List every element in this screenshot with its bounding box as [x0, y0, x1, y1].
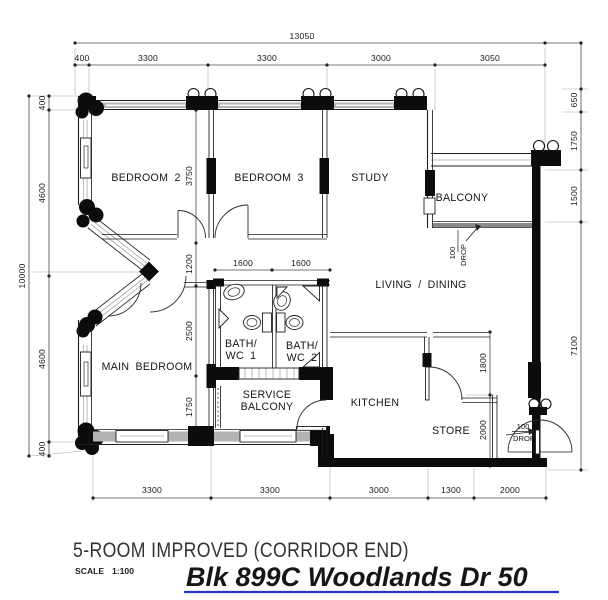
dim-bottom-1: 3300 — [260, 485, 280, 495]
entrance-drop-value: 100 — [517, 422, 530, 431]
dim-interior-0: 3750 — [184, 166, 194, 186]
dim-left-3: 400 — [37, 442, 47, 457]
room-label-bath1-line2: WC 1 — [226, 350, 257, 362]
dim-interior-3: 1750 — [184, 397, 194, 417]
bath1-fixtures — [219, 282, 272, 332]
room-label-service-line1: SERVICE — [243, 389, 291, 401]
dim-kitchen-1: 2000 — [478, 420, 488, 440]
floor-plan-page: 13050 400 3300 3300 3000 3050 10000 400 … — [0, 0, 608, 600]
dim-bottom-4: 2000 — [500, 485, 520, 495]
balcony-drop-word: DROP — [459, 244, 468, 266]
entrance-drop-word: DROP — [513, 434, 535, 443]
dim-bottom-3: 1300 — [441, 485, 461, 495]
room-label-kitchen: KITCHEN — [351, 397, 400, 409]
room-label-service-line2: BALCONY — [241, 401, 294, 413]
room-label-balcony: BALCONY — [436, 192, 489, 204]
dim-top-2: 3300 — [257, 53, 277, 63]
dim-kitchen-0: 1800 — [478, 353, 488, 373]
dim-top-0: 400 — [75, 53, 90, 63]
dim-right-0: 650 — [569, 93, 579, 108]
dim-left-0: 400 — [37, 96, 47, 111]
dim-top-3: 3000 — [371, 53, 391, 63]
dim-interior-1: 1200 — [184, 254, 194, 274]
dim-bath-1: 1600 — [291, 258, 311, 268]
dim-bottom-0: 3300 — [142, 485, 162, 495]
floor-plan-drawing: 13050 400 3300 3300 3000 3050 10000 400 … — [0, 0, 608, 600]
handwritten-annotation: Blk 899C Woodlands Dr 50 — [184, 562, 559, 592]
dim-right-2: 1500 — [569, 186, 579, 206]
dim-top-4: 3050 — [480, 53, 500, 63]
room-label-bedroom2: BEDROOM 2 — [111, 172, 180, 184]
room-label-study: STUDY — [351, 172, 388, 184]
room-label-store: STORE — [432, 425, 470, 437]
room-label-bath2-line2: WC 2 — [287, 352, 318, 364]
dim-right-3: 7100 — [569, 336, 579, 356]
room-label-bath2-line1: BATH/ — [286, 340, 318, 352]
dim-bottom-2: 3000 — [369, 485, 389, 495]
left-wall — [75, 96, 159, 455]
room-label-main-bedroom: MAIN BEDROOM — [102, 361, 193, 373]
bottom-wall — [77, 426, 330, 446]
dim-right-1: 1750 — [569, 131, 579, 151]
dim-top-1: 3300 — [138, 53, 158, 63]
dim-overall-width: 13050 — [290, 31, 315, 41]
scale-label: SCALE — [75, 566, 104, 576]
room-label-bedroom3: BEDROOM 3 — [234, 172, 303, 184]
scale-value: 1:100 — [112, 566, 134, 576]
dim-interior-2: 2500 — [184, 321, 194, 341]
dim-left-2: 4600 — [37, 349, 47, 369]
dim-left-1: 4600 — [37, 183, 47, 203]
dim-bath-0: 1600 — [233, 258, 253, 268]
dim-overall-height: 10000 — [17, 264, 27, 289]
address-note: Blk 899C Woodlands Dr 50 — [186, 562, 528, 592]
top-wall — [76, 89, 428, 119]
balcony-drop-annotation: 100 DROP — [448, 224, 481, 266]
balcony-drop-value: 100 — [448, 247, 457, 260]
plan-title: 5-ROOM IMPROVED (CORRIDOR END) — [73, 539, 409, 563]
room-label-living-dining: LIVING / DINING — [375, 279, 466, 291]
dimension-lines — [27, 41, 582, 499]
room-label-bath1-line1: BATH/ — [225, 338, 257, 350]
